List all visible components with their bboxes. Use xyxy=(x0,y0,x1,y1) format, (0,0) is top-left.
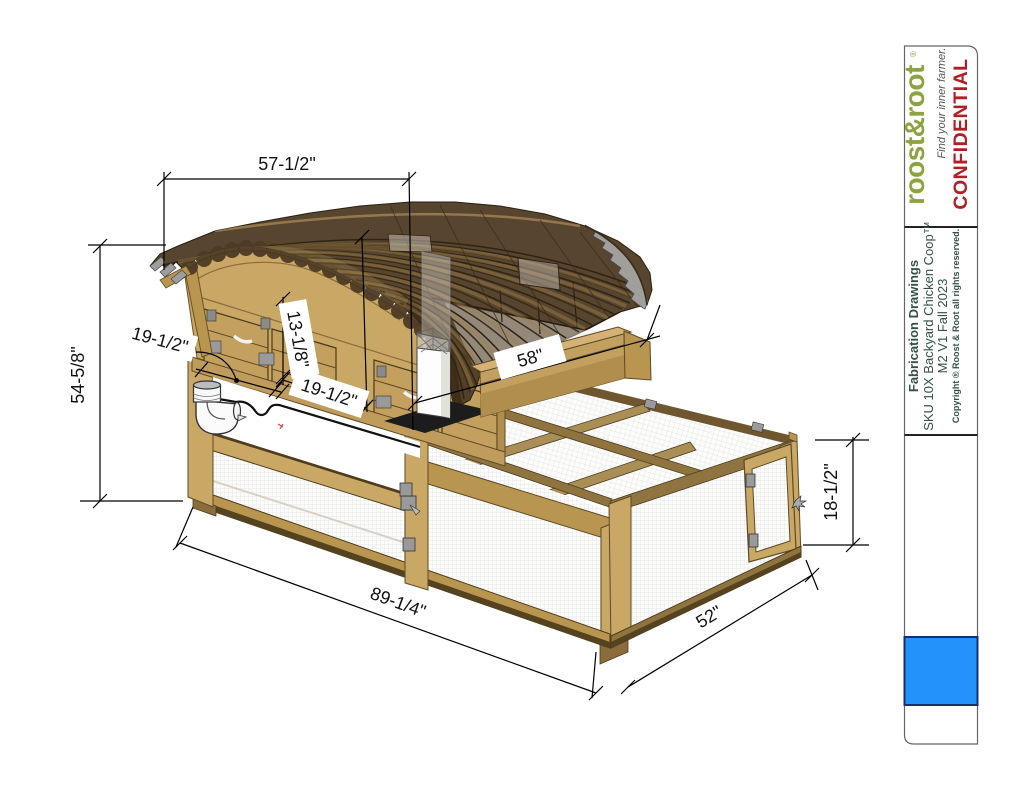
svg-text:roost&root: roost&root xyxy=(899,65,930,205)
svg-text:18-1/2": 18-1/2" xyxy=(821,463,841,520)
svg-text:®: ® xyxy=(909,51,918,57)
svg-text:54-5/8": 54-5/8" xyxy=(68,346,88,403)
svg-text:57-1/2": 57-1/2" xyxy=(258,154,315,174)
svg-text:SKU 10X Backyard Chicken Coop™: SKU 10X Backyard Chicken Coop™ xyxy=(921,221,936,431)
svg-text:Fabrication Drawings: Fabrication Drawings xyxy=(906,260,921,392)
svg-text:Copyright ® Roost & Root all r: Copyright ® Roost & Root all rights rese… xyxy=(951,229,961,423)
svg-text:Find your inner farmer.: Find your inner farmer. xyxy=(936,48,948,159)
svg-text:M2 V1 Fall 2023: M2 V1 Fall 2023 xyxy=(935,279,950,374)
svg-text:CONFIDENTIAL: CONFIDENTIAL xyxy=(950,58,972,209)
